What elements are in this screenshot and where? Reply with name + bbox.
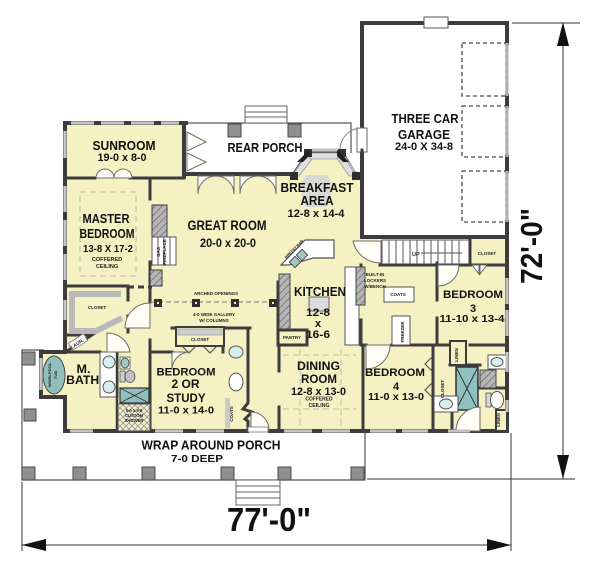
svg-text:W/BENCH: W/BENCH bbox=[364, 284, 386, 289]
svg-text:7-0 DEEP: 7-0 DEEP bbox=[171, 453, 223, 465]
svg-text:GAS: GAS bbox=[156, 247, 161, 257]
svg-text:11-10 x 13-4: 11-10 x 13-4 bbox=[440, 313, 505, 325]
svg-text:W/ COLUMNS: W/ COLUMNS bbox=[199, 318, 229, 323]
svg-text:CEILING: CEILING bbox=[309, 403, 330, 409]
svg-text:GARAGE: GARAGE bbox=[398, 127, 450, 142]
svg-text:WRAP AROUND PORCH: WRAP AROUND PORCH bbox=[142, 439, 281, 453]
svg-text:WHIRLPOOL: WHIRLPOOL bbox=[47, 362, 52, 387]
svg-text:DINING: DINING bbox=[297, 359, 340, 373]
svg-text:19-0 x 8-0: 19-0 x 8-0 bbox=[98, 152, 147, 164]
svg-text:COFFERED: COFFERED bbox=[306, 397, 333, 403]
svg-text:SHOWER: SHOWER bbox=[125, 418, 144, 423]
svg-text:CLOSET: CLOSET bbox=[478, 251, 497, 256]
svg-text:PANTRY: PANTRY bbox=[283, 335, 301, 340]
svg-text:BEDROOM: BEDROOM bbox=[157, 367, 216, 379]
svg-text:KITCHEN: KITCHEN bbox=[294, 285, 346, 299]
svg-text:FIREPLACE: FIREPLACE bbox=[162, 239, 167, 265]
svg-text:LINEN: LINEN bbox=[496, 413, 501, 427]
svg-text:CLOSET: CLOSET bbox=[440, 380, 445, 399]
svg-text:UP: UP bbox=[412, 252, 420, 258]
svg-text:12-8 x 14-4: 12-8 x 14-4 bbox=[288, 208, 346, 220]
svg-text:CLOSET: CLOSET bbox=[88, 305, 107, 310]
svg-text:GREAT ROOM: GREAT ROOM bbox=[188, 218, 267, 233]
svg-text:BATH: BATH bbox=[66, 373, 99, 387]
svg-text:BEDROOM: BEDROOM bbox=[443, 289, 503, 301]
svg-text:ARCHED OPENINGS: ARCHED OPENINGS bbox=[194, 291, 238, 296]
svg-text:CLOSET: CLOSET bbox=[191, 337, 210, 342]
svg-text:STUDY: STUDY bbox=[167, 391, 206, 405]
svg-text:AREA: AREA bbox=[301, 193, 335, 208]
svg-text:16-6: 16-6 bbox=[306, 329, 330, 341]
svg-text:REAR PORCH: REAR PORCH bbox=[228, 140, 303, 155]
svg-text:CEILING: CEILING bbox=[96, 264, 118, 270]
svg-text:ROOM: ROOM bbox=[301, 372, 337, 386]
svg-text:BEDROOM: BEDROOM bbox=[365, 367, 425, 379]
svg-text:COATS: COATS bbox=[229, 406, 234, 421]
svg-text:77'-0": 77'-0" bbox=[227, 501, 311, 538]
svg-text:MASTER: MASTER bbox=[83, 212, 130, 226]
svg-text:TUB: TUB bbox=[53, 371, 58, 379]
svg-text:FREEZER: FREEZER bbox=[400, 321, 405, 343]
svg-text:24-0 X 34-8: 24-0 X 34-8 bbox=[395, 141, 453, 153]
svg-text:2 OR: 2 OR bbox=[172, 379, 201, 391]
svg-text:4-0 WIDE GALLERY: 4-0 WIDE GALLERY bbox=[193, 312, 235, 317]
svg-text:BEDROOM: BEDROOM bbox=[80, 227, 135, 241]
svg-text:BUILT-IN: BUILT-IN bbox=[366, 272, 385, 277]
svg-text:COATS: COATS bbox=[390, 292, 405, 297]
svg-text:11-0 x 14-0: 11-0 x 14-0 bbox=[158, 405, 214, 417]
svg-text:LOCKERS: LOCKERS bbox=[364, 278, 386, 283]
svg-text:20-0 x 20-0: 20-0 x 20-0 bbox=[200, 238, 256, 250]
svg-text:72'-0": 72'-0" bbox=[514, 208, 549, 284]
svg-text:11-0 x 13-0: 11-0 x 13-0 bbox=[368, 391, 424, 403]
svg-text:COFFERED: COFFERED bbox=[92, 257, 122, 263]
svg-text:THREE CAR: THREE CAR bbox=[392, 111, 460, 126]
svg-text:13-8 X 17-2: 13-8 X 17-2 bbox=[83, 243, 133, 255]
svg-text:SUNROOM: SUNROOM bbox=[93, 138, 156, 153]
svg-text:LINEN: LINEN bbox=[454, 348, 459, 362]
